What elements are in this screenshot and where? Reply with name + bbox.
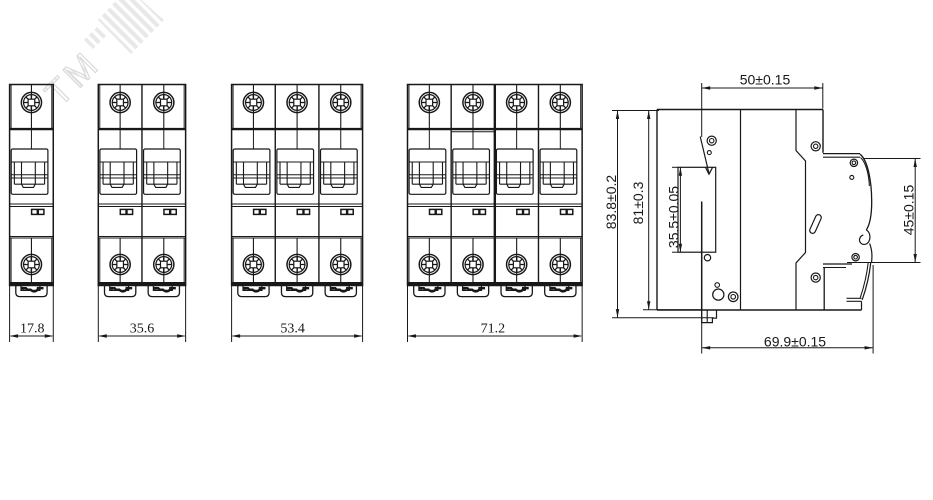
- svg-text:69.9±0.15: 69.9±0.15: [764, 334, 826, 350]
- svg-text:71.2: 71.2: [481, 322, 506, 337]
- svg-text:35.6: 35.6: [130, 322, 155, 337]
- svg-text:45±0.15: 45±0.15: [901, 185, 917, 236]
- svg-text:50±0.15: 50±0.15: [740, 72, 791, 88]
- svg-text:35.5±0.05: 35.5±0.05: [666, 186, 682, 248]
- svg-text:81±0.3: 81±0.3: [630, 181, 646, 224]
- svg-text:83.8±0.2: 83.8±0.2: [603, 175, 619, 230]
- svg-text:17.8: 17.8: [20, 322, 45, 337]
- svg-text:53.4: 53.4: [280, 322, 305, 337]
